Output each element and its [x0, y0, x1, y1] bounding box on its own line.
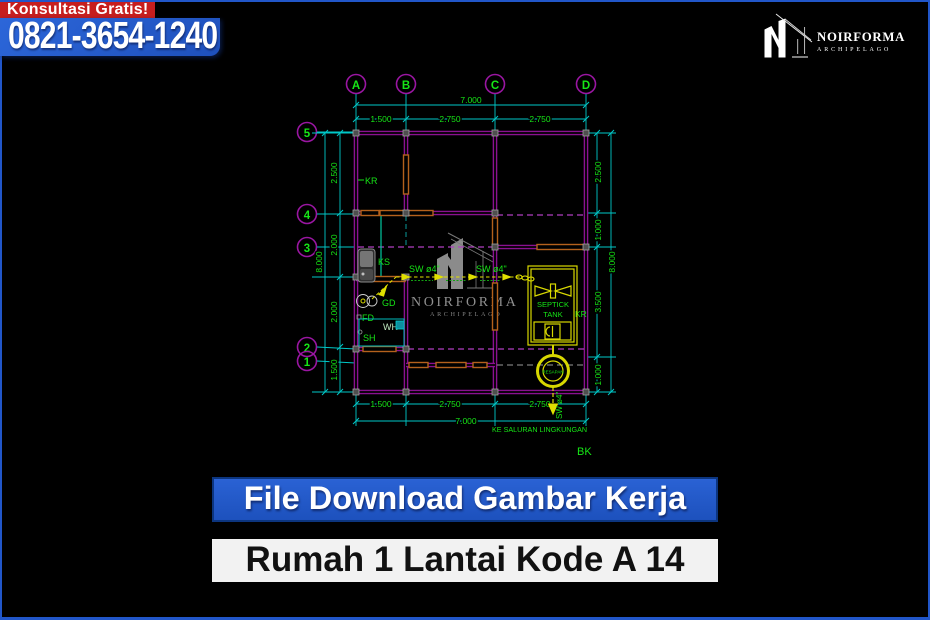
svg-text:TANK: TANK	[543, 310, 562, 319]
svg-text:2.500: 2.500	[329, 162, 339, 184]
svg-text:C: C	[491, 80, 499, 92]
svg-text:ARCHIPELAGO: ARCHIPELAGO	[817, 47, 891, 53]
svg-text:7.000: 7.000	[455, 416, 477, 426]
svg-text:2.500: 2.500	[593, 161, 603, 183]
svg-text:B: B	[402, 80, 410, 92]
svg-text:D: D	[582, 80, 590, 92]
svg-text:1.500: 1.500	[329, 359, 339, 381]
svg-text:2.750: 2.750	[529, 399, 551, 409]
svg-text:KS: KS	[378, 257, 390, 267]
svg-text:RESAPAN: RESAPAN	[542, 370, 563, 375]
svg-text:2.750: 2.750	[439, 114, 461, 124]
svg-text:2.750: 2.750	[529, 114, 551, 124]
svg-text:FD: FD	[362, 313, 374, 323]
svg-text:SW ø4": SW ø4"	[555, 392, 564, 419]
svg-text:1.500: 1.500	[370, 114, 392, 124]
svg-text:5: 5	[304, 128, 311, 140]
svg-text:SEPTICK: SEPTICK	[537, 300, 569, 309]
svg-text:2: 2	[304, 343, 310, 355]
svg-text:1.500: 1.500	[370, 399, 392, 409]
svg-text:GD: GD	[382, 298, 396, 308]
svg-text:SW ø4": SW ø4"	[409, 264, 440, 274]
svg-text:BK: BK	[577, 446, 592, 458]
svg-text:3: 3	[304, 243, 310, 255]
svg-text:4: 4	[304, 210, 311, 222]
svg-text:SH: SH	[363, 333, 376, 343]
svg-text:2.000: 2.000	[329, 234, 339, 256]
svg-text:SW ø4": SW ø4"	[476, 264, 507, 274]
svg-text:3.500: 3.500	[593, 291, 603, 313]
svg-text:NOIRFORMA: NOIRFORMA	[817, 30, 905, 44]
svg-text:2.000: 2.000	[329, 301, 339, 323]
svg-text:A: A	[352, 80, 360, 92]
svg-text:NOIRFORMA: NOIRFORMA	[411, 295, 518, 310]
svg-text:KE SALURAN LINGKUNGAN: KE SALURAN LINGKUNGAN	[492, 425, 587, 434]
svg-text:1.000: 1.000	[593, 219, 603, 241]
svg-text:KR: KR	[365, 176, 378, 186]
svg-text:8.000: 8.000	[607, 251, 617, 273]
svg-text:1.000: 1.000	[593, 364, 603, 386]
svg-text:8.000: 8.000	[314, 251, 324, 273]
svg-text:2.750: 2.750	[439, 399, 461, 409]
svg-text:ARCHIPELAGO: ARCHIPELAGO	[430, 311, 502, 318]
svg-text:1: 1	[304, 357, 311, 369]
svg-text:7.000: 7.000	[460, 95, 482, 105]
